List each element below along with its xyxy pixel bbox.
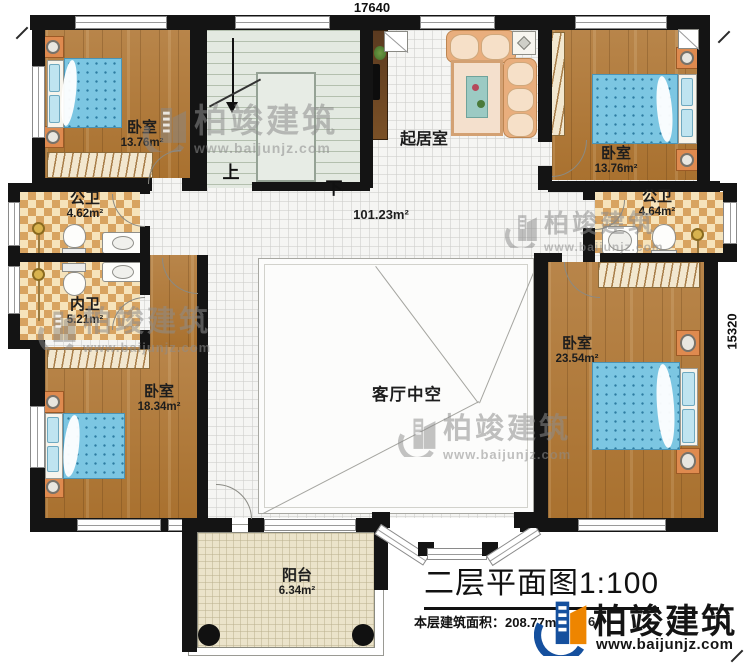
pillow — [47, 417, 59, 443]
room-label-bedroom-tr: 卧室 13.76m² — [566, 146, 666, 176]
nightstand — [42, 126, 64, 148]
pillow — [682, 372, 695, 406]
wall-segment — [538, 30, 552, 142]
room-label-balcony: 阳台 6.34m² — [247, 568, 347, 598]
coffee-table — [466, 76, 488, 118]
nightstand-knob-icon — [680, 452, 696, 470]
nightstand — [676, 448, 700, 474]
sofa-cushion — [481, 34, 510, 60]
window — [264, 519, 356, 531]
shower-rod — [697, 239, 699, 254]
sofa-cushion — [450, 34, 479, 60]
room-label-bedroom-bl: 卧室 18.34m² — [109, 384, 209, 414]
wall-segment — [8, 253, 147, 262]
pillow — [681, 109, 693, 137]
stairs-down-label: 下 — [318, 174, 350, 199]
wall-segment — [534, 253, 548, 532]
wall-segment — [248, 518, 264, 532]
sofa-cushion — [507, 62, 534, 86]
nightstand-knob-icon — [680, 153, 694, 167]
room-label-bedroom-tl: 卧室 13.76m² — [92, 120, 192, 150]
window — [578, 519, 666, 531]
brand-logo-icon — [534, 596, 590, 656]
hall-area-label: 101.23m² — [331, 208, 431, 223]
nightstand-knob-icon — [46, 395, 60, 409]
nightstand-knob-icon — [680, 51, 694, 65]
window — [420, 16, 495, 29]
dimension-tick — [16, 27, 29, 40]
window — [75, 16, 167, 29]
wall-segment — [583, 192, 595, 200]
wall-segment — [697, 30, 710, 190]
balcony-column — [198, 624, 220, 646]
shower-head-icon — [691, 228, 704, 241]
nightstand — [42, 391, 64, 413]
corner-window — [384, 31, 408, 52]
stairs-arrow-icon — [226, 102, 238, 113]
window — [8, 266, 20, 314]
nightstand-knob-icon — [46, 130, 60, 144]
nightstand — [42, 36, 64, 58]
room-label-bath-left-public: 公卫 4.62m² — [35, 191, 135, 221]
wall-segment — [140, 183, 150, 194]
balcony-column — [352, 624, 374, 646]
tv-icon — [372, 64, 380, 100]
pillow — [49, 64, 60, 92]
dimension-tick — [718, 31, 731, 44]
wall-segment — [252, 182, 370, 191]
pillow — [47, 446, 59, 472]
flower-icon — [472, 84, 479, 91]
wall-segment — [583, 228, 595, 262]
wardrobe — [47, 152, 153, 178]
flower-icon — [477, 100, 485, 108]
wall-segment — [548, 253, 562, 262]
nightstand — [676, 47, 698, 69]
sink-icon — [112, 236, 134, 250]
pillow — [682, 409, 695, 443]
window — [32, 66, 45, 138]
toilet-tank — [62, 263, 86, 272]
room-label-bath-right-public: 公卫 4.64m² — [607, 189, 707, 219]
floor-plan: 卧室 13.76m² 卧室 13.76m² 公卫 4.62m² 内卫 5.21m… — [0, 0, 750, 669]
corner-window-line — [678, 30, 699, 50]
corner-window-line — [384, 32, 408, 53]
window — [8, 202, 20, 246]
wall-segment — [190, 30, 207, 182]
window — [77, 519, 161, 531]
window — [575, 16, 667, 29]
wall-segment — [8, 340, 45, 349]
shower-head-icon — [32, 222, 45, 235]
wall-segment — [360, 30, 373, 188]
wall-segment — [704, 262, 718, 532]
window — [723, 202, 737, 244]
room-label-living: 起居室 — [354, 131, 494, 149]
nightstand-knob-icon — [46, 480, 60, 494]
brand-url: www.baijunjz.com — [596, 636, 733, 653]
dimension-right: 15320 — [725, 304, 740, 360]
room-label-bath-left-private: 内卫 5.21m² — [35, 297, 135, 327]
wall-segment — [182, 178, 207, 191]
pillow — [681, 78, 693, 106]
nightstand-knob-icon — [46, 40, 60, 54]
dimension-top: 17640 — [322, 0, 422, 15]
wall-segment — [182, 518, 215, 532]
nightstand — [676, 149, 698, 171]
wall-segment — [514, 512, 538, 528]
corner-window — [678, 29, 699, 49]
wall-segment — [600, 253, 723, 262]
wall-segment — [140, 330, 150, 349]
pillow — [49, 95, 60, 123]
nightstand-knob-icon — [680, 334, 696, 352]
window — [235, 16, 330, 29]
window — [30, 406, 45, 468]
void-label: 客厅中空 — [342, 386, 472, 404]
shower-head-icon — [32, 268, 45, 281]
toilet-icon — [63, 272, 86, 296]
toilet-icon — [652, 224, 676, 250]
stairs-up-label: 上 — [216, 158, 246, 183]
sink-icon — [608, 230, 632, 251]
toilet-icon — [63, 224, 86, 248]
nightstand — [676, 330, 700, 356]
sink-icon — [112, 265, 134, 279]
sofa-cushion — [507, 113, 534, 137]
wall-segment — [182, 532, 197, 652]
nightstand — [42, 476, 64, 498]
stair-landing — [256, 72, 316, 182]
wardrobe — [598, 262, 700, 288]
wardrobe — [47, 349, 150, 369]
sofa-cushion — [507, 88, 534, 112]
room-label-bedroom-br: 卧室 23.54m² — [527, 336, 627, 366]
